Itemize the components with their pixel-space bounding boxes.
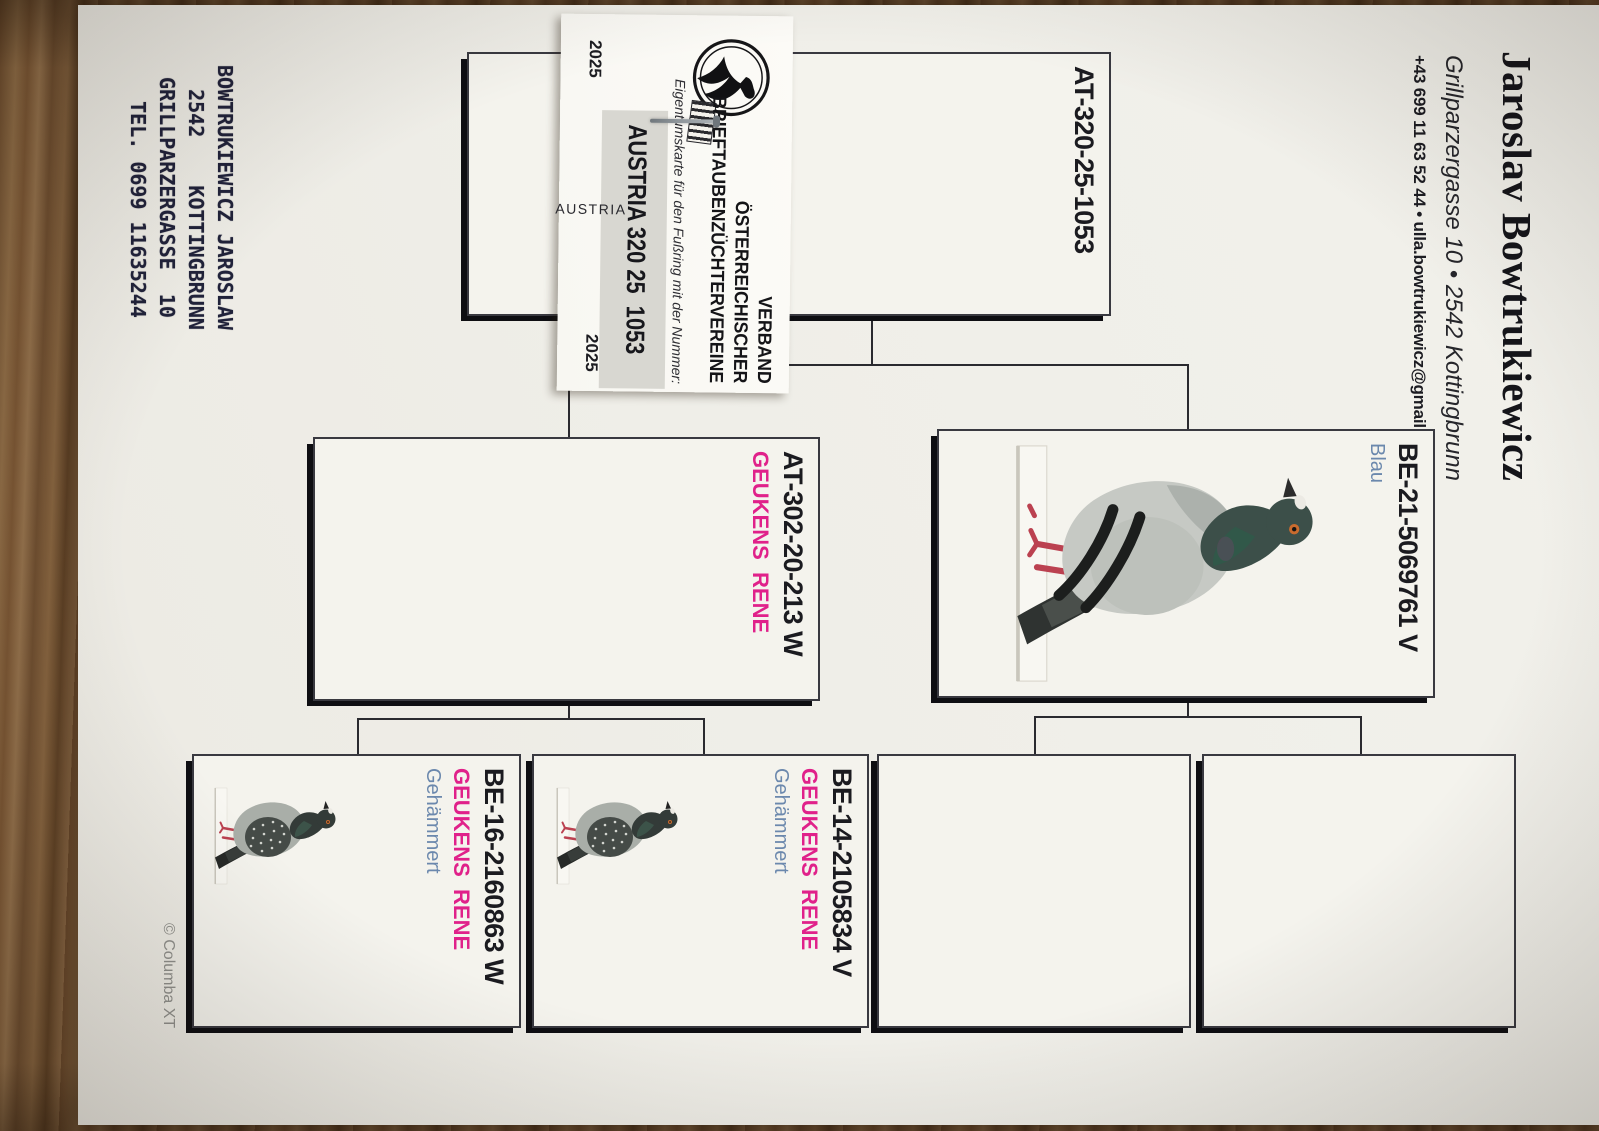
connector-arm-ff: [1360, 718, 1362, 754]
mother-ring-number: AT-302-20-213 W: [777, 439, 818, 699]
subject-ring-number: AT-320-25-1053: [1068, 54, 1109, 314]
breeder-address: Grillparzergasse 10 • 2542 Kottingbrunn: [1439, 55, 1467, 481]
mothers-mother-ring-number: BE-16-2160863 W: [478, 756, 519, 1026]
pedigree-page: Jaroslav Bowtrukiewicz Grillparzergasse …: [78, 5, 1599, 1125]
push-pin-icon: [650, 119, 716, 124]
mothers-father-breeder: GEUKENS RENE: [796, 756, 826, 1026]
federation-name: VERBANDÖSTERREICHISCHERBRIEFTAUBENZÜCHTE…: [703, 96, 779, 384]
card-year-right: 2025: [581, 334, 601, 372]
mothers-mother-pigeon-photo: [197, 786, 347, 886]
breeder-contact: +43 699 11 63 52 44 • ulla.bowtrukiewicz…: [1409, 55, 1429, 467]
mothers-mother-color: Gehämmert: [421, 756, 448, 1026]
mothers-father-color: Gehämmert: [769, 756, 796, 1026]
connector-arm-fm: [1034, 718, 1036, 754]
card-year-left: 2025: [585, 40, 605, 78]
connector-trunk-father: [1034, 716, 1362, 718]
pedigree-box-mothers-father: BE-14-2105834 V GEUKENS RENE Gehämmert: [532, 754, 869, 1028]
father-pigeon-photo: [973, 441, 1341, 686]
mothers-mother-breeder: GEUKENS RENE: [448, 756, 478, 1026]
pedigree-box-mother: AT-302-20-213 W GEUKENS RENE: [313, 437, 820, 701]
mother-breeder: GEUKENS RENE: [747, 439, 777, 699]
card-ring-number: AUSTRIA 320 25 1053: [619, 124, 653, 354]
push-pin-head: [713, 115, 720, 127]
ring-number-band: AUSTRIA 320 25 1053: [599, 110, 668, 389]
connector-arm-father: [1187, 366, 1189, 429]
card-country: AUSTRIA: [548, 200, 634, 217]
mothers-father-pigeon-photo: [539, 786, 689, 886]
connector-arm-mm: [357, 720, 359, 754]
card-caption: Eigentumskarte für den Fußring mit der N…: [669, 79, 689, 384]
father-color: Blau: [1365, 431, 1392, 696]
breeder-address-stamp: BOWTRUKIEWICZ JAROSLAW 2542 KOTTINGBRUNN…: [123, 65, 239, 330]
pedigree-box-fathers-mother: [877, 754, 1191, 1028]
connector-arm-mf: [703, 720, 705, 754]
father-ring-number: BE-21-5069761 V: [1392, 431, 1433, 696]
connector-subject-stub: [871, 312, 873, 365]
breeder-name: Jaroslav Bowtrukiewicz: [1493, 51, 1541, 481]
pedigree-box-father: BE-21-5069761 V Blau: [937, 429, 1435, 698]
software-watermark: © Columba XT: [159, 923, 177, 1028]
pedigree-box-fathers-father: [1202, 754, 1516, 1028]
pedigree-box-mothers-mother: BE-16-2160863 W GEUKENS RENE Gehämmert: [192, 754, 521, 1028]
connector-trunk-mother: [357, 718, 705, 720]
mothers-father-ring-number: BE-14-2105834 V: [826, 756, 867, 1026]
ring-ownership-card: VERBANDÖSTERREICHISCHERBRIEFTAUBENZÜCHTE…: [557, 14, 794, 394]
fathers-mother-ring-number: [1179, 756, 1189, 1026]
photo-of-pedigree-document: { "header": { "name": "Jaroslav Bowtruki…: [0, 0, 1599, 1131]
fathers-father-ring-number: [1504, 756, 1514, 1026]
